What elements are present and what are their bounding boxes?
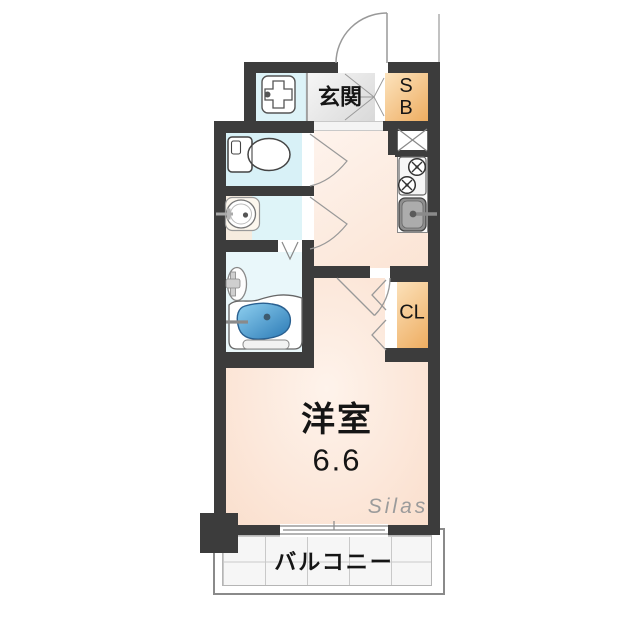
entrance-label: 玄関 [318,85,362,108]
wall [390,266,428,282]
wall [385,348,440,362]
wall [214,352,314,368]
balcony-label: バルコニー [274,550,394,573]
wall [310,266,370,278]
entrance-door-icon [336,13,439,63]
shoe-box-label-b: B [399,97,412,119]
closet-label: CL [399,303,425,324]
wall [244,62,256,124]
shoe-box-label-s: S [399,75,412,97]
refrigerator-space [397,128,428,152]
toilet-room [226,133,302,186]
toilet-doorway [302,133,314,186]
bathroom [226,252,302,352]
corner-pillar [200,513,238,553]
washing-machine-area [256,73,307,121]
washbasin-doorway [302,196,314,240]
wall [388,525,440,535]
wall [214,240,278,252]
main-room-size: 6.6 [312,445,361,478]
entrance-inner-door-frame [375,73,385,121]
entrance-threshold [314,121,385,131]
wall [214,186,314,196]
watermark: Silas [368,496,429,518]
kitchen-counter [397,155,428,233]
wall [214,121,314,133]
sliding-window [280,524,388,537]
floorplan-page: { "labels": { "entrance": "玄関", "shoe_bo… [0,0,640,640]
shoe-box-label: S B [399,75,412,119]
closet-door-frame [385,278,397,348]
wall [244,62,338,73]
washbasin-counter-floor [226,196,252,240]
wall [395,150,428,157]
bathroom-doorway [278,240,302,252]
wall [214,121,226,535]
main-room-label: 洋室 [301,403,373,439]
wall [428,62,440,535]
